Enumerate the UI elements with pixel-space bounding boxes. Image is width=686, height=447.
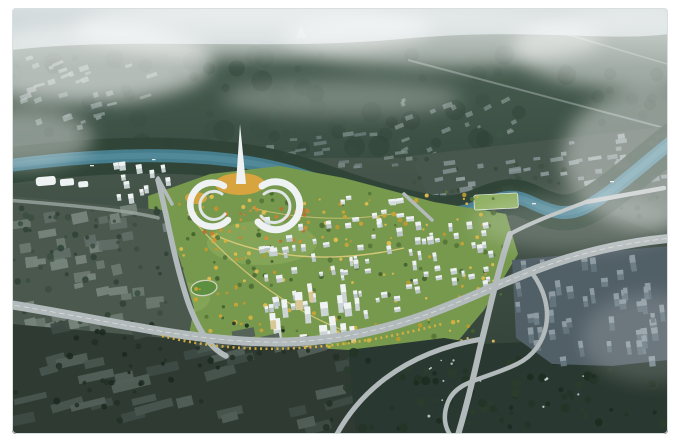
tree xyxy=(419,267,423,271)
tree xyxy=(223,255,228,260)
tree xyxy=(157,310,163,316)
tree xyxy=(25,278,30,283)
tree xyxy=(524,421,531,428)
autumn-tree xyxy=(217,293,220,296)
village-house xyxy=(440,360,442,362)
new-town-building xyxy=(394,296,401,302)
autumn-tree xyxy=(463,277,465,279)
tree xyxy=(417,176,421,180)
tree xyxy=(414,158,418,162)
town-block xyxy=(290,138,297,141)
autumn-tree xyxy=(342,210,345,213)
tree xyxy=(494,167,498,171)
tree xyxy=(245,259,250,264)
autumn-tree xyxy=(322,211,325,214)
residential-slab xyxy=(617,270,624,281)
autumn-tree xyxy=(422,228,424,230)
tree xyxy=(432,371,437,376)
tree xyxy=(237,283,242,288)
tree xyxy=(207,357,214,364)
tree xyxy=(27,214,34,221)
tree xyxy=(423,367,430,374)
tree xyxy=(256,350,262,356)
autumn-tree xyxy=(383,273,386,276)
autumn-tree xyxy=(215,248,218,251)
tree xyxy=(249,284,254,289)
autumn-tree xyxy=(213,238,217,242)
autumn-tree xyxy=(225,291,228,294)
tree xyxy=(230,355,236,361)
new-town-building xyxy=(269,304,275,313)
mountain-foliage xyxy=(606,86,614,94)
riverfront-hall xyxy=(352,217,359,222)
office-building xyxy=(121,174,126,181)
tree xyxy=(191,232,195,236)
tree xyxy=(252,273,257,278)
autumn-tree xyxy=(392,212,397,217)
tree xyxy=(653,410,657,414)
autumn-tree xyxy=(228,230,231,233)
tree xyxy=(447,369,456,378)
tree xyxy=(14,278,21,285)
tree xyxy=(164,252,169,257)
tree xyxy=(539,163,544,168)
tree xyxy=(609,408,613,412)
tree xyxy=(412,180,416,184)
office-building xyxy=(144,185,149,194)
autumn-tree xyxy=(182,254,185,257)
autumn-tree xyxy=(465,202,468,205)
tree xyxy=(433,398,438,403)
autumn-tree xyxy=(392,273,394,275)
tree xyxy=(133,390,137,394)
residential-slab xyxy=(550,291,556,303)
autumn-tree xyxy=(245,257,247,259)
tree xyxy=(195,346,200,351)
tree xyxy=(72,232,78,238)
new-town-building xyxy=(291,303,296,310)
autumn-tree xyxy=(428,255,431,258)
tree xyxy=(56,212,60,216)
tree xyxy=(580,408,584,412)
autumn-tree xyxy=(476,196,478,198)
tree xyxy=(138,265,142,269)
mountain-foliage xyxy=(129,110,146,127)
autumn-tree xyxy=(365,202,369,206)
tree xyxy=(99,329,105,335)
town-block xyxy=(468,181,476,186)
tree xyxy=(161,362,165,366)
autumn-tree xyxy=(310,235,312,237)
new-town-building xyxy=(396,227,403,236)
autumn-tree xyxy=(307,220,311,224)
autumn-tree xyxy=(243,279,246,282)
autumn-tree xyxy=(426,224,428,226)
village-house xyxy=(441,399,443,401)
tree xyxy=(138,382,142,386)
tree xyxy=(199,399,204,404)
autumn-tree xyxy=(300,239,302,241)
tree xyxy=(378,272,382,276)
tree xyxy=(399,423,408,432)
tree xyxy=(18,221,23,226)
new-town-building xyxy=(381,292,388,299)
tree xyxy=(424,157,429,162)
autumn-tree xyxy=(387,241,392,246)
tree xyxy=(323,424,330,431)
tree xyxy=(271,198,275,202)
tree xyxy=(365,358,371,364)
mist-band xyxy=(222,80,462,116)
tree xyxy=(575,381,583,389)
tree xyxy=(92,339,99,346)
tree xyxy=(557,182,560,185)
tree xyxy=(257,229,260,232)
autumn-tree xyxy=(396,337,401,342)
autumn-tree xyxy=(462,193,466,197)
tree xyxy=(570,395,575,400)
tree xyxy=(296,329,299,332)
tree xyxy=(410,279,413,282)
autumn-tree xyxy=(248,199,252,203)
town-block xyxy=(406,156,413,160)
tree xyxy=(48,216,51,219)
new-town-building xyxy=(427,236,435,245)
new-town-building xyxy=(422,238,427,244)
autumn-tree xyxy=(224,239,228,243)
autumn-tree xyxy=(179,247,183,251)
autumn-tree xyxy=(466,324,470,328)
autumn-tree xyxy=(382,214,386,218)
tree xyxy=(400,374,407,381)
autumn-tree xyxy=(418,323,423,328)
tree xyxy=(53,398,60,405)
tree xyxy=(205,315,209,319)
tree xyxy=(512,379,522,389)
screenshot-canvas xyxy=(0,0,686,447)
mountain-foliage xyxy=(297,141,310,154)
tree xyxy=(507,424,512,429)
autumn-tree xyxy=(210,231,214,235)
riverfront-hall xyxy=(396,213,404,218)
autumn-tree xyxy=(343,215,347,219)
tree xyxy=(19,205,25,211)
autumn-tree xyxy=(460,242,464,246)
town-block xyxy=(370,132,378,136)
tree xyxy=(289,278,292,281)
autumn-tree xyxy=(321,236,324,239)
tree xyxy=(164,359,167,362)
tree xyxy=(369,425,374,430)
tree xyxy=(281,329,284,332)
tree xyxy=(101,404,107,410)
new-town-building xyxy=(434,266,440,271)
town-block xyxy=(354,163,362,168)
autumn-tree xyxy=(204,247,208,251)
tree xyxy=(470,408,477,415)
tree xyxy=(358,424,367,433)
mountain-foliage xyxy=(282,129,289,136)
tree xyxy=(129,364,133,368)
tree xyxy=(91,254,97,260)
tree xyxy=(445,190,448,193)
autumn-tree xyxy=(403,221,408,226)
tree xyxy=(100,378,105,383)
autumn-tree xyxy=(209,195,214,200)
new-town-building xyxy=(452,277,458,285)
aerial-rendering-photo xyxy=(12,8,668,434)
autumn-tree xyxy=(243,302,246,305)
village-house xyxy=(542,406,544,408)
tree xyxy=(113,279,118,284)
tree xyxy=(454,243,459,248)
autumn-tree xyxy=(351,281,354,284)
tree xyxy=(527,374,534,381)
mountain-foliage xyxy=(345,146,357,158)
tree xyxy=(591,374,596,379)
tree xyxy=(470,197,474,201)
tree xyxy=(95,329,100,334)
mountain-foliage xyxy=(431,138,441,148)
autumn-tree xyxy=(305,209,309,213)
tree xyxy=(134,290,140,296)
tree xyxy=(417,398,425,406)
tree xyxy=(156,266,160,270)
autumn-tree xyxy=(219,314,223,318)
tree xyxy=(216,366,220,370)
tree xyxy=(75,403,80,408)
new-town-building xyxy=(264,306,268,313)
mountain-foliage xyxy=(213,120,235,142)
autumn-tree xyxy=(248,316,252,320)
tree xyxy=(120,300,127,307)
new-town-building xyxy=(468,273,475,279)
tree xyxy=(467,421,472,426)
office-building xyxy=(119,161,126,171)
town-block xyxy=(338,163,345,168)
autumn-tree xyxy=(302,213,306,217)
tree xyxy=(511,389,520,398)
autumn-tree xyxy=(253,206,257,210)
autumn-tree xyxy=(234,303,238,307)
tree xyxy=(471,329,475,333)
tree xyxy=(431,334,437,340)
riverfront-hall xyxy=(388,199,395,205)
tree xyxy=(64,235,67,238)
tree xyxy=(158,272,162,276)
tree xyxy=(114,400,120,406)
tree xyxy=(50,250,54,254)
tree xyxy=(66,353,73,360)
autumn-tree xyxy=(312,311,316,315)
tree xyxy=(547,178,553,184)
white-pavilion xyxy=(35,176,56,187)
tree xyxy=(83,381,87,385)
new-town-building xyxy=(371,234,375,238)
tree xyxy=(306,349,310,353)
tree xyxy=(450,189,455,194)
new-town-building xyxy=(365,268,372,273)
autumn-tree xyxy=(335,225,340,230)
tree xyxy=(329,418,333,422)
new-town-building xyxy=(291,267,297,274)
tree xyxy=(252,266,256,270)
autumn-tree xyxy=(234,285,238,289)
autumn-tree xyxy=(239,236,242,239)
tree xyxy=(658,419,666,427)
tree xyxy=(344,366,352,374)
tree xyxy=(528,400,535,407)
tree xyxy=(343,383,352,392)
tree xyxy=(87,388,92,393)
tree xyxy=(213,261,216,264)
tree xyxy=(368,244,373,249)
village-house xyxy=(544,379,546,381)
tree xyxy=(38,265,43,270)
tree xyxy=(490,405,497,412)
autumn-tree xyxy=(255,269,259,273)
tree xyxy=(427,321,430,324)
tree xyxy=(113,220,116,223)
mountain-foliage xyxy=(250,118,270,138)
tree xyxy=(259,198,264,203)
city-block xyxy=(98,239,119,251)
tree xyxy=(73,335,79,341)
tree xyxy=(84,279,87,282)
riverfront-hall xyxy=(340,199,345,204)
autumn-tree xyxy=(259,323,262,326)
autumn-tree xyxy=(425,193,429,197)
boat xyxy=(152,159,156,160)
mountain-foliage xyxy=(401,111,421,131)
city-block xyxy=(19,243,32,254)
autumn-tree xyxy=(485,273,487,275)
autumn-tree xyxy=(207,277,211,281)
autumn-tree xyxy=(469,266,472,269)
tree xyxy=(127,371,130,374)
autumn-tree xyxy=(247,251,251,255)
autumn-tree xyxy=(368,199,370,201)
autumn-tree xyxy=(443,233,446,236)
autumn-tree xyxy=(194,287,198,291)
tree xyxy=(135,343,141,349)
tree xyxy=(436,418,442,424)
tree xyxy=(47,253,54,260)
new-town-building xyxy=(450,268,457,275)
office-building xyxy=(123,181,130,189)
autumn-tree xyxy=(202,206,205,209)
tree xyxy=(116,234,121,239)
tree xyxy=(158,347,162,351)
autumn-tree xyxy=(359,222,363,226)
tree xyxy=(271,260,274,263)
riverfront-hall xyxy=(345,222,352,228)
village-house xyxy=(577,393,579,395)
tree xyxy=(23,227,29,233)
cbd-tower xyxy=(295,292,304,310)
tree xyxy=(509,405,514,410)
tree xyxy=(483,250,488,255)
autumn-tree xyxy=(461,285,464,288)
village-house xyxy=(442,380,444,382)
tree xyxy=(394,224,397,227)
tree xyxy=(463,368,469,374)
new-town-building xyxy=(394,307,401,313)
mountain-foliage xyxy=(468,128,489,149)
tree xyxy=(432,378,439,385)
new-town-building xyxy=(298,224,303,231)
tree xyxy=(85,235,89,239)
autumn-tree xyxy=(243,214,245,216)
tree xyxy=(94,218,97,221)
cbd-tower xyxy=(320,302,329,317)
tree xyxy=(116,241,119,244)
town-block xyxy=(477,163,484,168)
tree xyxy=(245,323,249,327)
new-town-building xyxy=(406,284,412,289)
autumn-tree xyxy=(390,237,392,239)
office-building xyxy=(113,162,119,170)
autumn-tree xyxy=(264,236,268,240)
new-town-building xyxy=(424,271,429,277)
tree xyxy=(500,293,502,295)
tree xyxy=(546,401,551,406)
tree xyxy=(561,403,570,412)
tree xyxy=(349,348,359,358)
aerial-rendering-svg xyxy=(12,8,668,434)
tree xyxy=(583,413,589,419)
autumn-tree xyxy=(234,252,237,255)
autumn-tree xyxy=(240,258,242,260)
autumn-tree xyxy=(240,218,243,221)
tree xyxy=(232,321,236,325)
tree xyxy=(123,336,127,340)
mountain-foliage xyxy=(494,68,503,77)
autumn-tree xyxy=(492,340,495,343)
tree xyxy=(65,272,69,276)
tree xyxy=(247,355,253,361)
residential-slab xyxy=(527,313,535,323)
city-block xyxy=(98,216,108,225)
autumn-tree xyxy=(344,342,347,345)
tree xyxy=(28,229,31,232)
riverfront-hall xyxy=(346,195,352,200)
tree xyxy=(404,263,408,267)
tree xyxy=(256,233,261,238)
autumn-tree xyxy=(475,235,479,239)
new-town-building xyxy=(376,298,380,303)
mountain-foliage xyxy=(268,130,280,142)
city-block xyxy=(87,273,96,280)
autumn-tree xyxy=(241,205,245,209)
new-town-building xyxy=(466,221,472,229)
autumn-tree xyxy=(304,226,308,230)
riverfront-hall xyxy=(381,209,387,214)
autumn-tree xyxy=(374,323,376,325)
tree xyxy=(198,363,202,367)
autumn-tree xyxy=(398,218,403,223)
mountain-foliage xyxy=(213,72,223,82)
new-town-building xyxy=(319,272,323,277)
tree xyxy=(595,418,603,426)
autumn-tree xyxy=(328,345,331,348)
autumn-tree xyxy=(425,297,428,300)
autumn-tree xyxy=(208,329,212,333)
autumn-tree xyxy=(457,320,460,323)
autumn-tree xyxy=(463,198,465,200)
tree xyxy=(164,301,167,304)
tree xyxy=(270,284,273,287)
